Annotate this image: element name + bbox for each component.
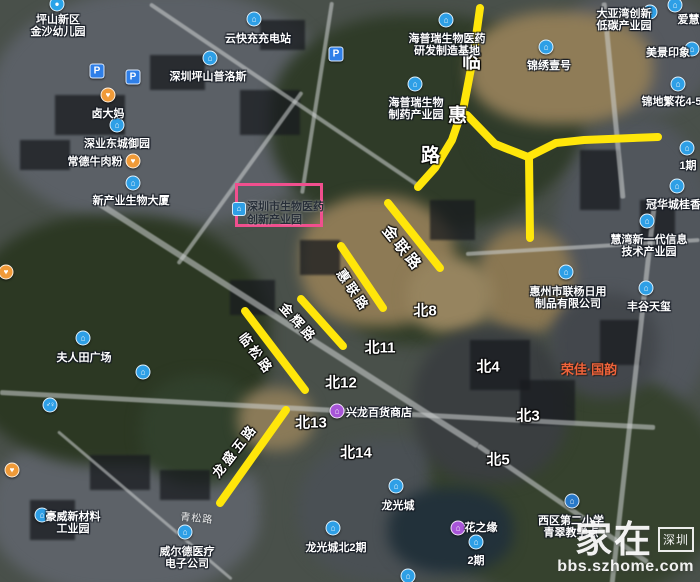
poi-label: 深业东城御园 bbox=[84, 138, 150, 150]
b-icon[interactable]: ⌂ bbox=[326, 521, 341, 536]
biomedical-park-highlight-box: ⌂ 深圳市生物医药 创新产业园 bbox=[235, 183, 323, 227]
poi-longguang-north2[interactable]: 龙光城北2期 bbox=[305, 542, 366, 554]
poi-lianyang-co[interactable]: 惠州市联杨日用制品有限公司 bbox=[530, 286, 607, 310]
poi-jinsha-kindergarten[interactable]: 坪山新区金沙幼儿园 bbox=[31, 14, 86, 38]
poi-label: 威尔德医疗 bbox=[160, 546, 215, 558]
poi-label: 制品有限公司 bbox=[530, 298, 607, 310]
b-icon[interactable]: ⌂ bbox=[408, 77, 423, 92]
highlight-road-fork-east bbox=[467, 115, 528, 157]
b-icon[interactable]: ⌂ bbox=[76, 331, 91, 346]
poi-fenggu-tianxi[interactable]: 丰谷天玺 bbox=[627, 301, 671, 313]
b-icon[interactable]: ⌂ bbox=[680, 141, 695, 156]
poi-label: 豪威新材料 bbox=[46, 511, 101, 523]
poi-label: 荣佳·国韵 bbox=[561, 364, 617, 376]
highlight-box-label-line2: 创新产业园 bbox=[247, 211, 302, 227]
poi-weierde[interactable]: 威尔德医疗电子公司 bbox=[160, 546, 215, 570]
poi-label: 技术产业园 bbox=[611, 246, 688, 258]
poi-shenye-dongcheng[interactable]: 深业东城御园 bbox=[84, 138, 150, 150]
poi-label: 冠华城桂香园 bbox=[646, 199, 700, 211]
poi-label: 龙光城北2期 bbox=[305, 542, 366, 554]
poi-label: 花之缘 bbox=[465, 522, 498, 534]
poi-hill-icon[interactable]: ⌂ bbox=[136, 365, 151, 380]
poi-label: 1期 bbox=[679, 160, 696, 172]
district-label-bei5: 北5 bbox=[486, 449, 509, 470]
poi-yi-qi[interactable]: 1期 bbox=[679, 160, 696, 172]
poi-label: 电子公司 bbox=[160, 558, 215, 570]
district-label-bei13: 北13 bbox=[295, 412, 327, 433]
watermark-url: bbs.szhome.com bbox=[557, 558, 694, 576]
poi-label: 海普瑞生物医药 bbox=[409, 33, 486, 45]
poi-rongjia-guoyun[interactable]: 荣佳·国韵 bbox=[561, 364, 617, 376]
poi-label: 制药产业园 bbox=[389, 109, 444, 121]
satellite-map[interactable]: 临惠路金联路惠联路金辉路临松路龙盛五路青松路北8北11北12北13北14北4北3… bbox=[0, 0, 700, 582]
b-icon[interactable]: ⌂ bbox=[639, 281, 654, 296]
poi-aihuiwan[interactable]: 爱慧湾 bbox=[678, 14, 700, 26]
poi-label: 常德牛肉粉 bbox=[68, 156, 123, 168]
poi-er-qi[interactable]: 2期 bbox=[467, 555, 484, 567]
parking-1-icon[interactable]: P bbox=[90, 64, 105, 79]
poi-haipurui-park[interactable]: 海普瑞生物制药产业园 bbox=[389, 97, 444, 121]
poi-label: 美景印象 bbox=[646, 47, 690, 59]
poi-label: 爱慧湾 bbox=[678, 14, 700, 26]
watermark-brand: 家在 bbox=[575, 522, 653, 556]
b-icon[interactable]: ⌂ bbox=[178, 525, 193, 540]
poi-label: 锦绣壹号 bbox=[527, 60, 571, 72]
poi-yunkuaichong[interactable]: 云快充充电站 bbox=[225, 33, 291, 45]
poi-longguangcheng[interactable]: 龙光城 bbox=[382, 500, 415, 512]
watermark: 家在 深圳 bbs.szhome.com bbox=[557, 522, 694, 576]
poi-huiwan-info[interactable]: 慧湾新一代信息技术产业园 bbox=[611, 234, 688, 258]
building-icon: ⌂ bbox=[232, 202, 246, 216]
restroom-icon[interactable]: ♂♀ bbox=[43, 398, 58, 413]
poi-label: 夫人田广场 bbox=[57, 352, 112, 364]
poi-haipurui-base[interactable]: 海普瑞生物医药研发制造基地 bbox=[409, 33, 486, 57]
poi-label: 研发制造基地 bbox=[409, 45, 486, 57]
poi-jinxiu-yihao[interactable]: 锦绣壹号 bbox=[527, 60, 571, 72]
poi-label: 深圳坪山普洛斯 bbox=[170, 71, 247, 83]
b-icon[interactable]: ⌂ bbox=[559, 265, 574, 280]
road-label-linhui-char-lu: 路 bbox=[421, 141, 443, 168]
road-label-linhui-char-hui: 惠 bbox=[448, 101, 470, 128]
poi-ludama[interactable]: 卤大妈 bbox=[92, 108, 125, 120]
poi-label: 工业园 bbox=[46, 523, 101, 535]
highlight-road-south-arm bbox=[529, 157, 530, 238]
poi-label: 惠州市联杨日用 bbox=[530, 286, 607, 298]
highlight-road-east-arm bbox=[528, 137, 658, 157]
poi-label: 2期 bbox=[467, 555, 484, 567]
food-southwest-icon[interactable]: ♥ bbox=[5, 463, 20, 478]
poi-jindi-fanhua[interactable]: 锦地繁花4-5期 bbox=[642, 96, 700, 108]
poi-changde-beef[interactable]: 常德牛肉粉 bbox=[68, 156, 123, 168]
poi-pingshan-prologis[interactable]: 深圳坪山普洛斯 bbox=[170, 71, 247, 83]
poi-haowei[interactable]: 豪威新材料工业园 bbox=[46, 511, 101, 535]
b-icon[interactable]: ⌂ bbox=[203, 51, 218, 66]
poi-label: 锦地繁花4-5期 bbox=[642, 96, 700, 108]
poi-dayawan-park[interactable]: 大亚湾创新低碳产业园 bbox=[597, 8, 652, 32]
poi-label: 卤大妈 bbox=[92, 108, 125, 120]
parking-2-icon[interactable]: P bbox=[126, 70, 141, 85]
poi-label: 新产业生物大厦 bbox=[93, 195, 170, 207]
b-icon[interactable]: ⌂ bbox=[670, 179, 685, 194]
b-icon[interactable]: ⌂ bbox=[671, 77, 686, 92]
food-icon[interactable]: ♥ bbox=[126, 154, 141, 169]
district-label-bei3: 北3 bbox=[516, 405, 539, 426]
poi-label: 坪山新区 bbox=[31, 14, 86, 26]
poi-xinchanye-tower[interactable]: 新产业生物大厦 bbox=[93, 195, 170, 207]
poi-label: 大亚湾创新 bbox=[597, 8, 652, 20]
district-label-bei12: 北12 bbox=[325, 372, 357, 393]
poi-huazhiyuan[interactable]: 花之缘 bbox=[465, 522, 498, 534]
shop-icon[interactable]: ⌂ bbox=[330, 404, 345, 419]
b-icon[interactable]: ⌂ bbox=[439, 13, 454, 28]
district-label-bei8: 北8 bbox=[413, 300, 436, 321]
b-icon[interactable]: ⌂ bbox=[247, 12, 262, 27]
parking-3-icon[interactable]: P bbox=[329, 47, 344, 62]
food-icon[interactable]: ♥ bbox=[101, 88, 116, 103]
poi-xinglong-store[interactable]: 兴龙百货商店 bbox=[346, 407, 412, 419]
b-icon[interactable]: ⌂ bbox=[126, 176, 141, 191]
poi-furentian-square[interactable]: 夫人田广场 bbox=[57, 352, 112, 364]
poi-label: 金沙幼儿园 bbox=[31, 26, 86, 38]
poi-label: 兴龙百货商店 bbox=[346, 407, 412, 419]
district-label-bei4: 北4 bbox=[476, 356, 499, 377]
poi-label: 海普瑞生物 bbox=[389, 97, 444, 109]
district-label-bei14: 北14 bbox=[340, 442, 372, 463]
poi-label: 低碳产业园 bbox=[597, 20, 652, 32]
b-icon[interactable]: ⌂ bbox=[539, 40, 554, 55]
poi-label: 云快充充电站 bbox=[225, 33, 291, 45]
school-icon[interactable]: ⌂ bbox=[565, 494, 580, 509]
district-label-bei11: 北11 bbox=[365, 337, 396, 358]
shop-east-icon[interactable]: ⌂ bbox=[451, 521, 466, 536]
poi-meijing-yinxiang[interactable]: 美景印象 bbox=[646, 47, 690, 59]
b-icon[interactable]: ⌂ bbox=[389, 479, 404, 494]
b-icon[interactable]: ⌂ bbox=[469, 535, 484, 550]
poi-label: 慧湾新一代信息 bbox=[611, 234, 688, 246]
b-icon[interactable]: ⌂ bbox=[640, 214, 655, 229]
poi-label: 龙光城 bbox=[382, 500, 415, 512]
watermark-region-badge: 深圳 bbox=[658, 527, 694, 552]
poi-label: 丰谷天玺 bbox=[627, 301, 671, 313]
poi-guanhuacheng[interactable]: 冠华城桂香园 bbox=[646, 199, 700, 211]
poi-bottom-icon[interactable]: ⌂ bbox=[401, 569, 416, 582]
